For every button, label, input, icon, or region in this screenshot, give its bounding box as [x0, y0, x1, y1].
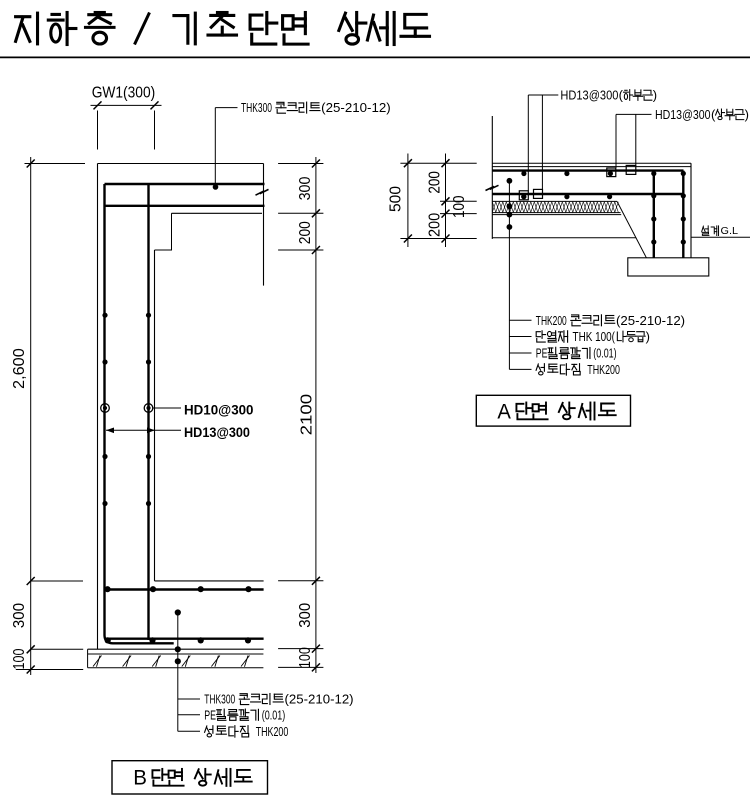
- svg-text:HD10@300: HD10@300: [184, 402, 254, 418]
- svg-text:A: A: [497, 400, 511, 423]
- svg-text:): ): [653, 88, 657, 103]
- svg-text:GW1(300): GW1(300): [92, 85, 156, 102]
- svg-text:2,600: 2,600: [11, 348, 28, 389]
- svg-text:G.L: G.L: [721, 225, 739, 237]
- svg-text:): ): [646, 329, 650, 344]
- svg-text:300: 300: [297, 602, 314, 627]
- svg-text:100: 100: [451, 195, 468, 218]
- svg-text:THK200: THK200: [587, 362, 620, 377]
- svg-text:100: 100: [11, 648, 28, 669]
- svg-text:(0.01): (0.01): [593, 346, 616, 361]
- svg-text:100: 100: [297, 647, 314, 668]
- svg-text:(25-210-12): (25-210-12): [616, 313, 685, 328]
- svg-text:300: 300: [11, 603, 28, 629]
- svg-text:THK200: THK200: [256, 724, 289, 739]
- svg-text:B: B: [133, 767, 147, 790]
- svg-text:300: 300: [297, 176, 314, 200]
- svg-text:500: 500: [388, 186, 405, 212]
- svg-text:PE: PE: [204, 707, 216, 722]
- svg-text:(0.01): (0.01): [262, 707, 286, 722]
- svg-text:(: (: [711, 107, 716, 122]
- svg-text:200: 200: [427, 171, 444, 194]
- svg-text:): ): [745, 107, 749, 122]
- svg-text:(25-210-12): (25-210-12): [321, 100, 391, 115]
- svg-text:200: 200: [427, 212, 444, 237]
- svg-text:HD13@300: HD13@300: [655, 107, 711, 122]
- svg-text:THK300: THK300: [204, 692, 235, 707]
- svg-text:THK 100(: THK 100(: [573, 329, 616, 344]
- svg-text:2100: 2100: [298, 393, 315, 435]
- svg-text:200: 200: [297, 221, 314, 244]
- svg-text:THK300: THK300: [241, 100, 272, 115]
- svg-text:(25-210-12): (25-210-12): [285, 692, 354, 707]
- svg-text:HD13@300: HD13@300: [184, 424, 250, 440]
- svg-text:HD13@300: HD13@300: [560, 88, 618, 103]
- svg-text:THK200: THK200: [536, 313, 567, 328]
- svg-text:(: (: [619, 88, 624, 103]
- svg-text:PE: PE: [536, 346, 548, 361]
